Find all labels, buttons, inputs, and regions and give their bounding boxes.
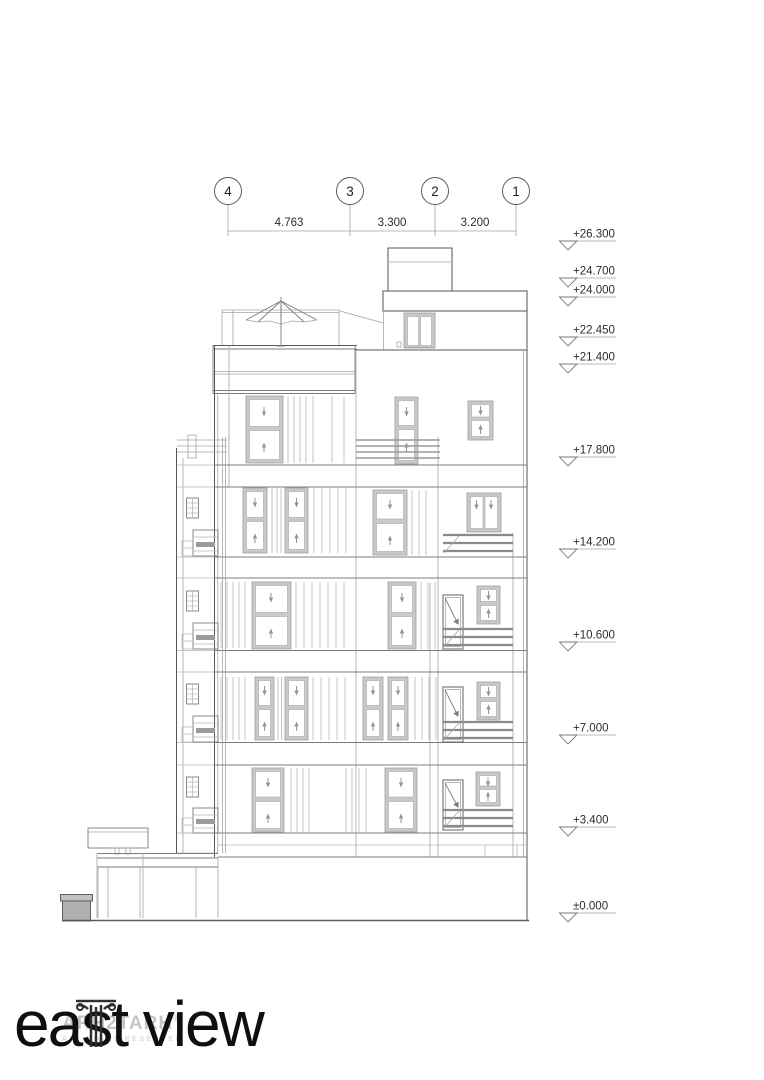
penthouse-door (397, 313, 435, 348)
patio-umbrella (246, 297, 317, 346)
view-title: east view (14, 992, 263, 1056)
svg-text:+17.800: +17.800 (573, 445, 615, 457)
window (388, 677, 408, 740)
window (477, 682, 500, 720)
louver-grille (182, 530, 218, 556)
grid-bubble-3: 3 (337, 178, 364, 205)
balcony-glass-door (443, 595, 463, 649)
grid-bubble-2: 2 (422, 178, 449, 205)
window (477, 586, 500, 624)
svg-text:3.200: 3.200 (461, 217, 490, 229)
svg-text:+14.200: +14.200 (573, 537, 615, 549)
louver-grille (182, 623, 218, 649)
window (476, 772, 500, 806)
window (285, 677, 308, 740)
casement-window (467, 493, 501, 532)
window (363, 677, 383, 740)
svg-text:+24.000: +24.000 (573, 285, 615, 297)
grid-bubble-1: 1 (503, 178, 530, 205)
dimension-labels: 4.763 3.300 3.200 (275, 217, 490, 229)
svg-text:1: 1 (512, 184, 520, 199)
level-markers: +26.300 +24.700 +24.000 +22.450 +21.400 … (559, 229, 616, 923)
level-marker: +21.400 (559, 352, 616, 374)
svg-text:+24.700: +24.700 (573, 266, 615, 278)
floor-3 (221, 582, 513, 649)
window (285, 488, 308, 553)
level-marker: +10.600 (559, 630, 616, 652)
window (243, 488, 267, 553)
svg-text:4.763: 4.763 (275, 217, 304, 229)
roof-tank (88, 828, 148, 854)
svg-text:4: 4 (224, 184, 232, 199)
svg-text:+3.400: +3.400 (573, 815, 609, 827)
level-marker: +17.800 (559, 445, 616, 467)
level-marker: ±0.000 (559, 901, 616, 923)
balcony-glass-door (443, 687, 463, 742)
elevation-sheet: 4 3 2 1 4.763 3.300 3.200 +26.300 +24.70… (0, 0, 764, 1080)
penthouse (383, 291, 527, 349)
window (468, 401, 493, 440)
roof-structures (213, 248, 527, 394)
floor-1 (252, 768, 513, 832)
floor-2 (221, 677, 513, 742)
louver-grille (182, 808, 218, 833)
balcony-door (395, 397, 418, 464)
roof-parapet (213, 345, 527, 394)
glass-block-window (187, 777, 199, 797)
window (252, 768, 284, 832)
grid-bubble-4: 4 (215, 178, 242, 205)
terrace-railing (222, 310, 383, 345)
svg-text:+22.450: +22.450 (573, 325, 615, 337)
floor-4 (243, 488, 513, 555)
svg-text:2: 2 (431, 184, 439, 199)
svg-text:+21.400: +21.400 (573, 352, 615, 364)
balcony-glass-door (443, 780, 463, 830)
svg-text:±0.000: ±0.000 (573, 901, 608, 913)
louver-grille (182, 716, 218, 742)
glass-block-window (187, 498, 199, 518)
stair-bulkhead (388, 248, 452, 291)
balcony-railing (443, 535, 513, 553)
floor-5 (246, 396, 493, 464)
level-marker: +14.200 (559, 537, 616, 559)
level-marker: +26.300 (559, 229, 616, 251)
svg-text:+7.000: +7.000 (573, 723, 609, 735)
side-wing (177, 435, 228, 853)
window (388, 582, 416, 649)
ground-annex (61, 828, 219, 921)
window (252, 582, 291, 649)
level-marker: +22.450 (559, 325, 616, 347)
window (373, 490, 407, 555)
column-grid: 4 3 2 1 4.763 3.300 3.200 (215, 178, 530, 237)
svg-text:3: 3 (346, 184, 354, 199)
window (246, 396, 283, 463)
level-marker: +7.000 (559, 723, 616, 745)
glass-block-window (187, 684, 199, 704)
svg-text:+26.300: +26.300 (573, 229, 615, 241)
column-capital-icon (74, 997, 118, 1049)
svg-text:+10.600: +10.600 (573, 630, 615, 642)
east-elevation-drawing: 4 3 2 1 4.763 3.300 3.200 +26.300 +24.70… (0, 0, 764, 1080)
level-marker: +24.000 (559, 285, 616, 307)
window (255, 677, 274, 740)
glass-block-window (187, 591, 199, 611)
window (385, 768, 417, 832)
level-marker: +3.400 (559, 815, 616, 837)
svg-text:3.300: 3.300 (378, 217, 407, 229)
waste-bin (61, 895, 93, 922)
